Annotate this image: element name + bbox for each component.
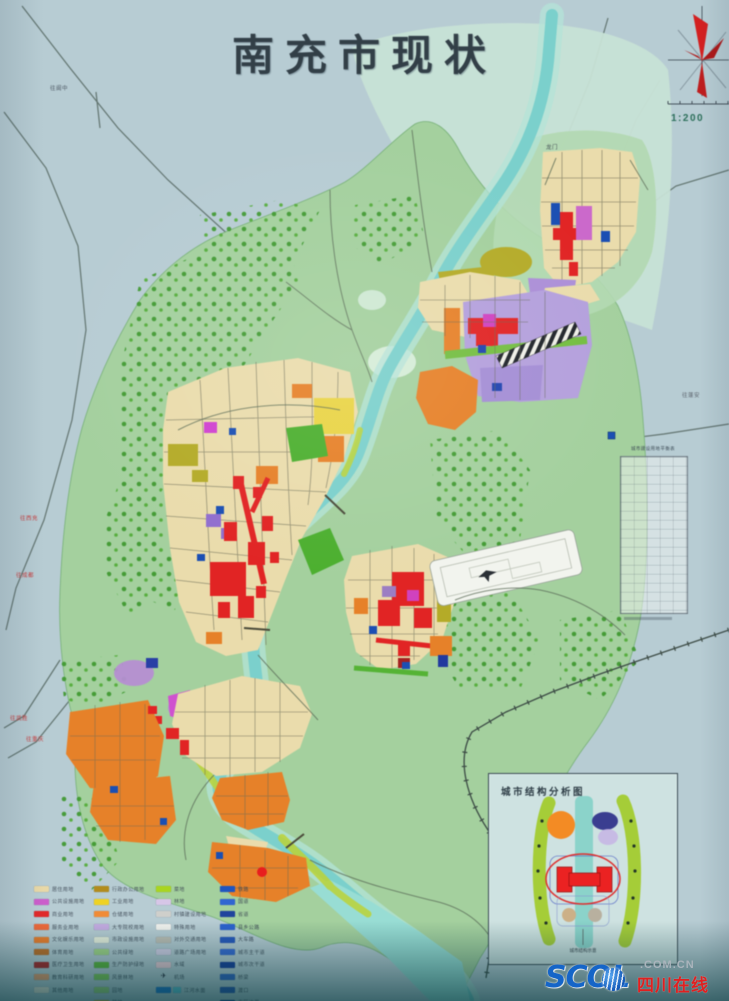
south-node xyxy=(562,908,576,922)
structure-diagram: 城市结构示意 xyxy=(489,774,677,964)
north-node xyxy=(547,811,575,839)
scale-bar xyxy=(668,101,729,104)
map-board: 1:200 南充市现状 城市建设用地平衡表 城市结构分析图 xyxy=(0,0,729,1001)
land-balance-table xyxy=(620,456,688,614)
edge-label: 往武胜 xyxy=(10,714,28,722)
structure-inset: 城市结构分析图 xyxy=(488,773,678,965)
globe-icon xyxy=(602,968,625,991)
edge-label: 往阆中 xyxy=(50,84,68,92)
land-table-title: 城市建设用地平衡表 xyxy=(608,446,698,452)
inset-caption: 城市结构示意 xyxy=(570,947,597,954)
sandbar xyxy=(358,290,386,310)
edge-label: 往西充 xyxy=(20,514,38,522)
watermark: SCOL .COM.CN 四川在线 xyxy=(545,959,725,999)
site-marker xyxy=(608,432,615,439)
northeast-node xyxy=(592,812,618,830)
scale-label: 1:200 xyxy=(671,113,704,124)
edge-label: 往重庆 xyxy=(26,735,44,743)
south-node xyxy=(588,908,602,922)
edge-label: 往蓬安 xyxy=(682,391,700,399)
land-table-note xyxy=(624,617,672,620)
map-photo: 1:200 南充市现状 城市建设用地平衡表 城市结构分析图 xyxy=(0,0,729,1001)
edge-label: 往成都 xyxy=(16,571,34,579)
page-title: 南充市现状 xyxy=(0,22,729,83)
edge-label: 龙门 xyxy=(546,143,558,151)
river-band xyxy=(575,796,593,948)
watermark-suffix: .COM.CN xyxy=(640,959,695,971)
watermark-site-name: 四川在线 xyxy=(637,971,709,996)
